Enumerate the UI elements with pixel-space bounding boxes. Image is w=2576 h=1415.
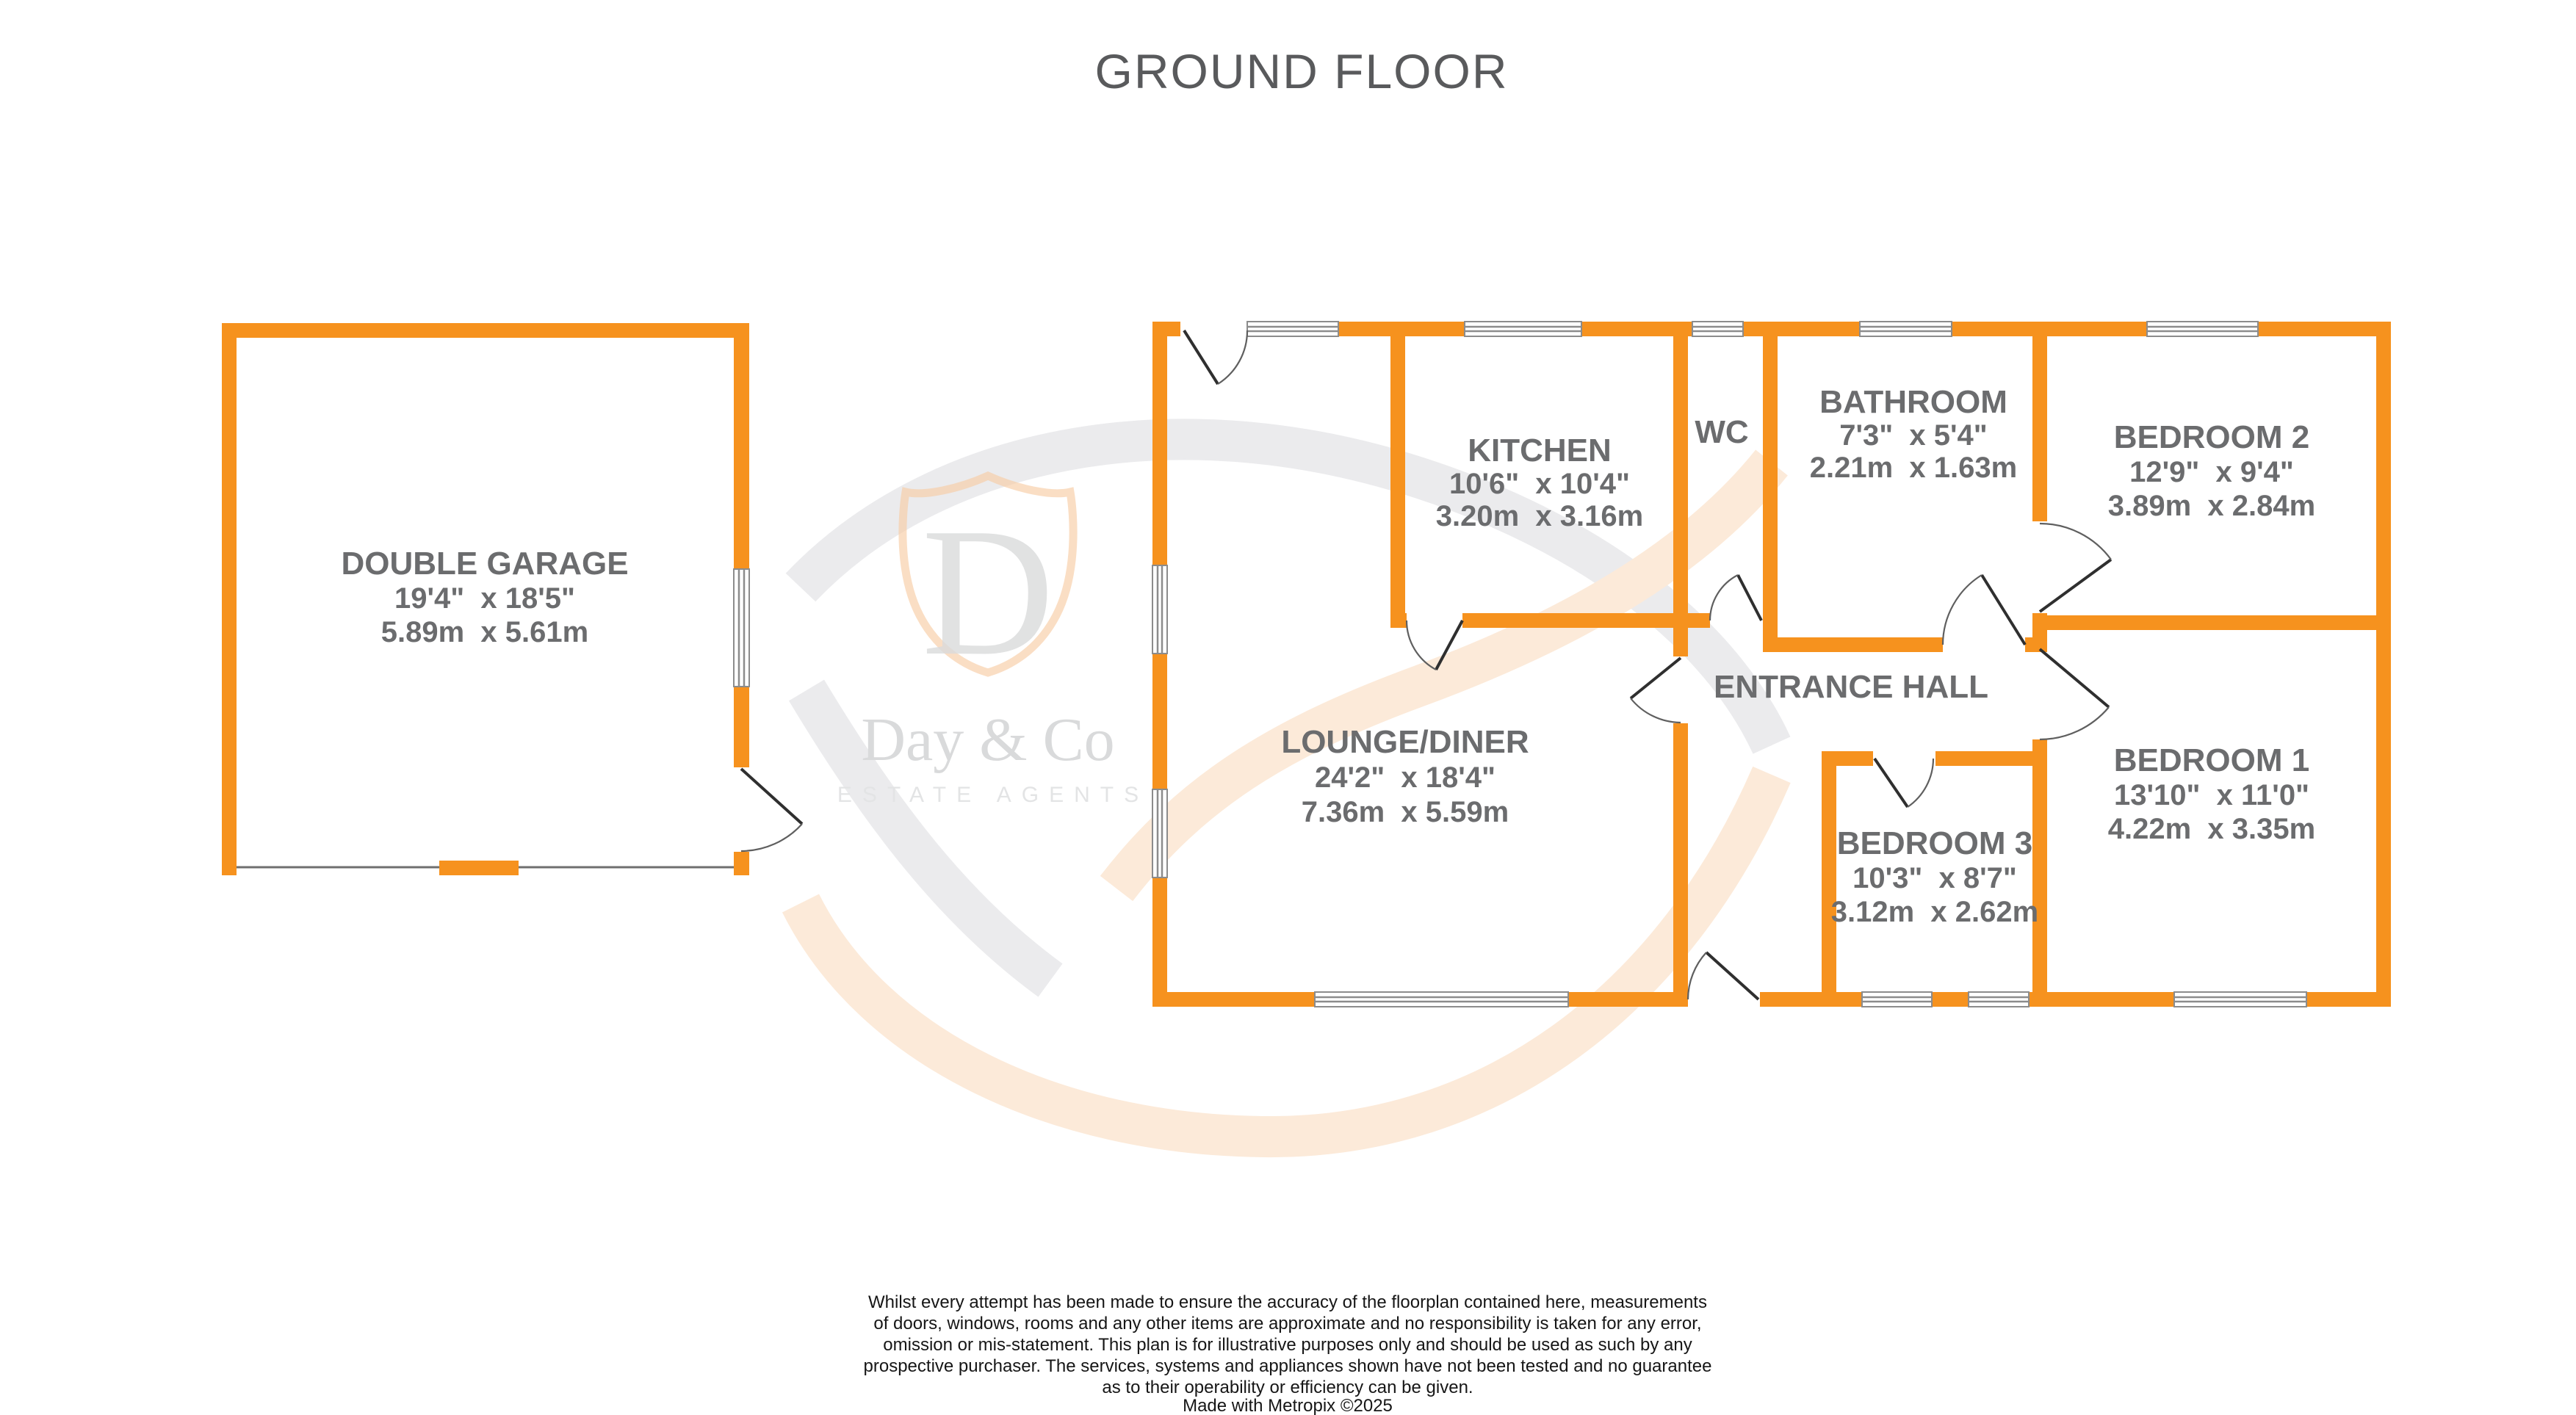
window-wc-top [1692,322,1743,336]
bedroom1-bedroom2-divider [2032,615,2391,630]
bedroom3-top-wall [1935,751,2032,766]
bathroom-dim-metric: 2.21m x 1.63m [1810,452,2017,484]
kitchen-bottom-wall-stub [1390,613,1407,628]
bedroom2-dim-metric: 3.89m x 2.84m [2108,490,2315,522]
floorplan-page: D Day & Co ESTATE AGENTS [0,0,2576,1415]
bathroom-dim-imperial: 7'3" x 5'4" [1839,419,1988,452]
garage-label: DOUBLE GARAGE [341,546,628,582]
bedroom2-left-wall-upper [2032,336,2047,521]
garage-side-door [741,769,802,851]
lounge-dim-imperial: 24'2" x 18'4" [1315,761,1496,794]
watermark-swoosh-peach-lower-icon [801,775,1772,1137]
wc-door [1710,575,1761,620]
bathroom-left-wall [1763,336,1778,652]
bedroom1-dim-metric: 4.22m x 3.35m [2108,813,2315,845]
page-title: GROUND FLOOR [1094,44,1508,98]
bathroom-door [1943,575,2025,645]
window-lounge-left-upper [1152,565,1167,654]
house-wall-left [1152,322,1167,1007]
lounge-hall-wall-lower [1673,723,1688,1007]
bedroom1-label: BEDROOM 1 [2114,742,2309,778]
kitchen-left-wall [1390,336,1405,628]
bedroom2-door [2040,524,2111,612]
wc-door-jamb [1688,613,1710,628]
window-garage-right [734,569,749,687]
garage-wall-right-upper [734,323,749,569]
bedroom3-left-wall [1822,751,1836,1007]
bathroom-label: BATHROOM [1819,384,2007,420]
bedroom1-door [2040,649,2109,739]
window-kitchen-top [1465,322,1581,336]
window-lounge-top [1247,322,1338,336]
garage-wall-right-stub [734,852,749,875]
front-door-gap [1688,992,1760,1007]
kitchen-wc-lounge-wall-upper [1673,336,1688,656]
watermark-initial: D [922,491,1055,694]
garage-dim-imperial: 19'4" x 18'5" [394,582,575,615]
kitchen-label: KITCHEN [1468,433,1612,468]
bedroom2-dim-imperial: 12'9" x 9'4" [2129,456,2294,488]
lounge-label: LOUNGE/DINER [1281,724,1529,760]
watermark-tagline: ESTATE AGENTS [837,783,1149,807]
bedroom3-dim-metric: 3.12m x 2.62m [1831,896,2038,928]
garage-wall-top [222,323,749,338]
metropix-credit: Made with Metropix ©2025 [1183,1396,1393,1415]
lounge-hall-door [1631,658,1681,723]
hall-label: ENTRANCE HALL [1714,669,1988,705]
bedroom1-dim-imperial: 13'10" x 11'0" [2114,779,2309,811]
garage-dim-metric: 5.89m x 5.61m [381,616,588,648]
garage-wall-left [222,323,237,875]
window-lounge-left-lower [1152,789,1167,877]
garage-wall-right-mid [734,687,749,767]
bedroom3-door [1875,759,1933,807]
kitchen-bottom-wall [1462,613,1688,628]
bedroom2-label: BEDROOM 2 [2114,419,2309,455]
bedroom1-left-wall [2032,739,2047,1007]
bedroom3-dim-imperial: 10'3" x 8'7" [1852,862,2017,894]
disclaimer-line-1: Whilst every attempt has been made to en… [868,1292,1707,1312]
garage-wall-bottom-segment [439,861,519,875]
window-bedroom2-top [2147,322,2258,336]
disclaimer-line-5: as to their operability or efficiency ca… [1102,1378,1473,1397]
bedroom3-label: BEDROOM 3 [1837,825,2032,861]
disclaimer-line-4: prospective purchaser. The services, sys… [864,1356,1712,1376]
watermark: D Day & Co ESTATE AGENTS [801,439,1772,1137]
window-bedroom1-bottom [2174,992,2306,1007]
house-wall-right [2376,322,2391,1007]
wc-label: WC [1695,414,1748,450]
bathroom-bottom-wall [1763,637,1943,652]
back-door [1184,330,1247,384]
disclaimer-line-2: of doors, windows, rooms and any other i… [873,1314,1701,1333]
disclaimer: Whilst every attempt has been made to en… [864,1292,1712,1415]
window-bathroom-top [1860,322,1952,336]
window-lounge-bottom [1315,992,1568,1007]
window-bedroom3-bottom-left [1862,992,1932,1007]
back-door-gap [1180,322,1247,336]
watermark-brand: Day & Co [861,706,1114,774]
floorplan-canvas: D Day & Co ESTATE AGENTS [0,0,2576,1415]
disclaimer-line-3: omission or mis-statement. This plan is … [883,1335,1692,1355]
kitchen-dim-imperial: 10'6" x 10'4" [1449,468,1630,500]
lounge-dim-metric: 7.36m x 5.59m [1302,796,1509,828]
kitchen-dim-metric: 3.20m x 3.16m [1436,500,1643,532]
window-bedroom3-bottom-right [1969,992,2029,1007]
